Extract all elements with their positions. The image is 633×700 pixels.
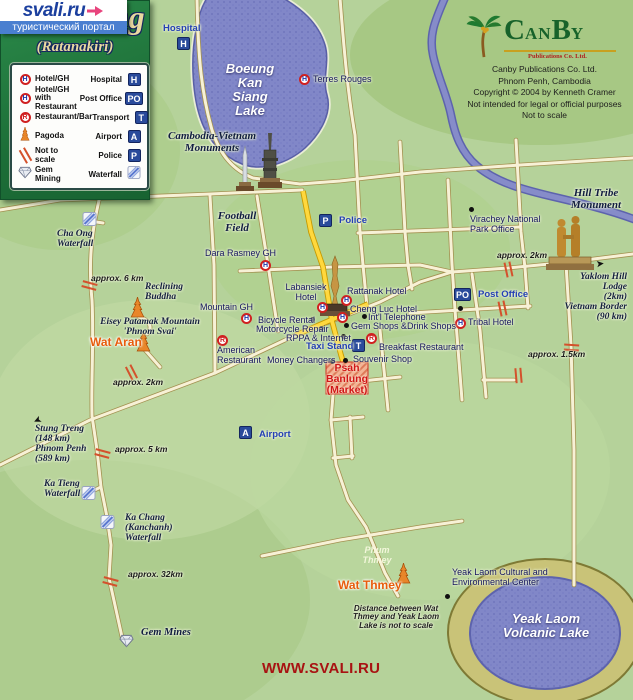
- map-label: BoeungKanSiangLake: [226, 62, 274, 118]
- legend-label: Post Office: [79, 94, 126, 103]
- map-label-line: Lake is not to scale: [353, 622, 439, 630]
- pagoda-legend-icon: [17, 127, 33, 146]
- map-label-line: approx. 1.5km: [528, 350, 585, 359]
- map-label: Cha OngWaterfall: [57, 229, 93, 249]
- palm-tree-icon: [464, 14, 504, 58]
- map-label-line: Buddha: [145, 292, 183, 302]
- map-label: Police: [339, 216, 367, 226]
- poi-dot-cheng-luc: [458, 306, 463, 311]
- sq-legend-icon: PO: [125, 92, 143, 105]
- map-label: Post Office: [478, 290, 528, 300]
- svali-arrow-icon: [87, 5, 104, 17]
- gem-legend-icon: [17, 166, 33, 184]
- map-label-line: (90 km): [564, 312, 627, 322]
- canby-credits: Canby Publications Co. Ltd. Phnom Penh, …: [452, 64, 633, 122]
- direction-arrow-icon: ➤: [595, 259, 604, 271]
- map-label: Yaklom HillLodge(2km)Vietnam Border(90 k…: [564, 272, 627, 322]
- map-label-line: Reclining: [145, 282, 183, 292]
- map-label: Virachey NationalPark Office: [470, 215, 540, 234]
- poi-dot-intl-telephone: [362, 314, 367, 319]
- map-label: approx. 32km: [128, 570, 183, 579]
- map-label-line: Police: [339, 216, 367, 226]
- legend-label: Hospital: [79, 75, 126, 84]
- map-label-line: Waterfall: [57, 239, 93, 249]
- legend-label: Restaurant/Bar: [33, 113, 92, 122]
- banlung-ratanakiri-map: Banlung (Ratanakiri) HHotel/GHHospitalHH…: [0, 0, 633, 700]
- map-label-line: (148 km): [35, 434, 86, 444]
- sq-icon: H: [128, 73, 141, 86]
- legend-row: HHotel/GH with RestaurantPost OfficePO: [17, 89, 143, 108]
- map-label-line: Environmental Center: [452, 578, 548, 588]
- map-label-line: Rattanak Hotel: [347, 287, 407, 297]
- brk-legend-icon: [17, 151, 33, 160]
- map-label-line: (Kanchanh): [125, 523, 173, 533]
- poi-dot-virachey: [469, 207, 474, 212]
- map-label-line: Lodge: [564, 282, 627, 292]
- credit-line: Not intended for legal or official purpo…: [452, 99, 633, 111]
- hotel-icon-cheng-luc: H: [337, 312, 348, 323]
- map-label: approx. 2km: [113, 378, 163, 387]
- map-label-line: Ka Tieng: [44, 479, 80, 489]
- legend-label: Transport: [92, 113, 132, 122]
- map-label-line: Monuments: [168, 143, 256, 155]
- map-label-line: Airport: [259, 430, 291, 440]
- map-label-line: Cambodia-Vietnam: [168, 131, 256, 143]
- map-label-line: Field: [218, 223, 257, 235]
- map-label-line: Taxi Stand: [306, 342, 353, 352]
- waterfall-icon-ka-tieng: [81, 486, 96, 505]
- svali-logo-text: svali.ru: [23, 0, 86, 22]
- map-label-line: approx. 2km: [497, 251, 547, 260]
- map-label-line: Wat Aran: [90, 336, 142, 349]
- map-label: approx. 1.5km: [528, 350, 585, 359]
- map-label-line: Thmey: [362, 556, 391, 566]
- map-label-line: Lake: [226, 104, 274, 118]
- map-label-line: (589 km): [35, 454, 86, 464]
- waterfall-icon-ka-chang: [100, 515, 115, 534]
- map-label-line: Gem Shops &Drink Shops: [351, 322, 456, 332]
- map-label-line: Breakfast Restaurant: [379, 343, 464, 353]
- legend-label: Waterfall: [79, 170, 126, 179]
- credit-line: Canby Publications Co. Ltd.: [452, 64, 633, 76]
- legend-label: Airport: [79, 132, 126, 141]
- svali-logo[interactable]: svali.ru туристический портал: [0, 0, 127, 34]
- sq-legend-icon: A: [125, 130, 143, 143]
- sq-icon: PO: [125, 92, 142, 105]
- map-label: Ka Chang(Kanchanh)Waterfall: [125, 513, 173, 543]
- map-label-line: Waterfall: [125, 533, 173, 543]
- canby-logo: CANBY: [504, 14, 624, 47]
- map-label-line: Phnom Penh: [35, 444, 86, 454]
- map-label-line: Waterfall: [44, 489, 80, 499]
- legend-row: PagodaAirportA: [17, 127, 143, 146]
- map-label-line: Kan: [226, 76, 274, 90]
- map-label-line: Post Office: [478, 290, 528, 300]
- map-label-line: approx. 2km: [113, 378, 163, 387]
- map-label: Taxi Stand: [306, 342, 353, 352]
- credit-line: Not to scale: [452, 110, 633, 122]
- map-label: Rattanak Hotel: [347, 287, 407, 297]
- map-label-line: Football: [218, 211, 257, 223]
- sq-icon: A: [128, 130, 141, 143]
- canby-block: CANBY Publications Co. Ltd. Canby Public…: [452, 10, 633, 122]
- map-legend: HHotel/GHHospitalHHHotel/GH with Restaur…: [10, 63, 149, 190]
- credit-line: Phnom Penh, Cambodia: [452, 76, 633, 88]
- map-label: Mountain GH: [200, 303, 253, 313]
- map-label: Airport: [259, 430, 291, 440]
- poi-dot-gem-shops: [344, 323, 349, 328]
- map-label: Hill TribeMonument: [571, 188, 621, 211]
- rc-legend-icon: R: [17, 112, 33, 123]
- map-label-line: Stung Treng: [35, 424, 86, 434]
- map-label: PsahBanlung(Market): [326, 363, 368, 396]
- sq-icon: T: [135, 111, 148, 124]
- svali-tagline: туристический портал: [0, 21, 127, 34]
- road-break-icon: [513, 368, 523, 384]
- map-label: Gem Shops &Drink Shops: [351, 322, 456, 332]
- airport-icon: A: [239, 426, 252, 439]
- hotel-icon-mountain-gh: H: [241, 313, 252, 324]
- pagoda-icon: [20, 127, 30, 146]
- map-label-line: Tribal Hotel: [468, 318, 514, 328]
- police-icon: P: [319, 214, 332, 227]
- map-label-line: Hospital: [163, 24, 200, 34]
- map-label: Wat Aran: [90, 336, 142, 349]
- sq-icon: P: [128, 149, 141, 162]
- map-label-line: approx. 6 km: [91, 274, 143, 283]
- post-office-icon: PO: [454, 288, 471, 301]
- map-label: Stung Treng(148 km)Phnom Penh(589 km): [35, 424, 86, 464]
- map-label-line: Dara Rasmey GH: [205, 249, 276, 259]
- map-label-line: Wat Thmey: [338, 579, 402, 592]
- map-label-line: Hill Tribe: [571, 188, 621, 200]
- hotel-icon-dara-rasmey: H: [260, 260, 271, 271]
- map-label: Wat Thmey: [338, 579, 402, 592]
- map-label-line: approx. 5 km: [115, 445, 167, 454]
- map-label-line: approx. 32km: [128, 570, 183, 579]
- hc-icon: H: [20, 74, 31, 85]
- map-label-line: (2km): [564, 292, 627, 302]
- map-label-line: Mountain GH: [200, 303, 253, 313]
- hotel-icon-tribal: H: [455, 318, 466, 329]
- map-label-line: Cha Ong: [57, 229, 93, 239]
- map-label: Breakfast Restaurant: [379, 343, 464, 353]
- map-label-line: Volcanic Lake: [503, 626, 589, 640]
- rc-icon: R: [20, 112, 31, 123]
- hotel-icon-terres-rouges: H: [299, 74, 310, 85]
- credit-line: Copyright © 2004 by Kenneth Cramer: [452, 87, 633, 99]
- map-label-line: (Market): [326, 385, 368, 396]
- canby-logo-subtitle: Publications Co. Ltd.: [528, 53, 587, 60]
- site-url[interactable]: WWW.SVALI.RU: [262, 660, 380, 677]
- gem-icon: [18, 166, 32, 184]
- map-label: Dara Rasmey GH: [205, 249, 276, 259]
- legend-label: Hotel/GH with Restaurant: [33, 86, 79, 112]
- map-label: AmericanRestaurant: [217, 346, 261, 365]
- map-label: LabansiekHotel: [285, 283, 326, 302]
- transport-icon: T: [352, 339, 365, 352]
- wf-icon: [127, 166, 141, 184]
- map-label-line: Monument: [571, 200, 621, 212]
- map-label-line: Yaklom Hill: [564, 272, 627, 282]
- map-label: Yeak LaomVolcanic Lake: [503, 612, 589, 640]
- map-label: Terres Rouges: [313, 75, 372, 85]
- map-label: Distance between WatThmey and Yeak LaomL…: [353, 605, 439, 630]
- legend-label: Gem Mining: [33, 166, 79, 183]
- hc-legend-icon: H: [17, 74, 33, 85]
- restaurant-icon-breakfast: R: [366, 333, 377, 344]
- legend-label: Pagoda: [33, 132, 79, 141]
- canby-gold-rule: [504, 50, 616, 52]
- poi-dot-yeak-laom-center: [445, 594, 450, 599]
- map-label: Tribal Hotel: [468, 318, 514, 328]
- map-label-line: Hotel: [285, 293, 326, 303]
- map-label-line: Siang: [226, 90, 274, 104]
- map-label-line: Gem Mines: [141, 627, 191, 638]
- map-label-line: Park Office: [470, 225, 540, 235]
- map-label: PhumThmey: [362, 546, 391, 565]
- hospital-icon: H: [177, 37, 190, 50]
- legend-label: Not to scale: [33, 147, 79, 164]
- map-label: Yeak Laom Cultural andEnvironmental Cent…: [452, 568, 548, 587]
- map-label-line: Eisey Patamak Mountain: [100, 317, 200, 327]
- map-label: approx. 5 km: [115, 445, 167, 454]
- brk-icon: [17, 147, 32, 164]
- map-label-line: Boeung: [226, 62, 274, 76]
- map-label: approx. 2km: [497, 251, 547, 260]
- sq-legend-icon: H: [125, 73, 143, 86]
- map-label-line: Ka Chang: [125, 513, 173, 523]
- hotel-icon-labansiek: H: [317, 302, 328, 313]
- map-label-line: Terres Rouges: [313, 75, 372, 85]
- wf-legend-icon: [125, 166, 143, 184]
- map-label: approx. 6 km: [91, 274, 143, 283]
- hc-legend-icon: H: [17, 93, 33, 104]
- legend-label: Hotel/GH: [33, 75, 79, 84]
- map-label-line: Vietnam Border: [564, 302, 627, 312]
- gem-mines-icon: [119, 634, 134, 653]
- map-subtitle: (Ratanakiri): [1, 39, 149, 56]
- map-label: Cambodia-VietnamMonuments: [168, 131, 256, 154]
- map-label: Hospital: [163, 24, 200, 34]
- sq-legend-icon: T: [132, 111, 150, 124]
- legend-row: Gem MiningWaterfall: [17, 165, 143, 184]
- hc-icon: H: [20, 93, 31, 104]
- map-label: FootballField: [218, 211, 257, 234]
- map-label: Gem Mines: [141, 627, 191, 638]
- legend-row: Not to scalePoliceP: [17, 146, 143, 165]
- map-label-line: Restaurant: [217, 356, 261, 366]
- map-label: Ka TiengWaterfall: [44, 479, 80, 499]
- legend-label: Police: [79, 151, 126, 160]
- sq-legend-icon: P: [125, 149, 143, 162]
- map-label-line: Yeak Laom: [503, 612, 589, 626]
- map-label: RecliningBuddha: [145, 282, 183, 302]
